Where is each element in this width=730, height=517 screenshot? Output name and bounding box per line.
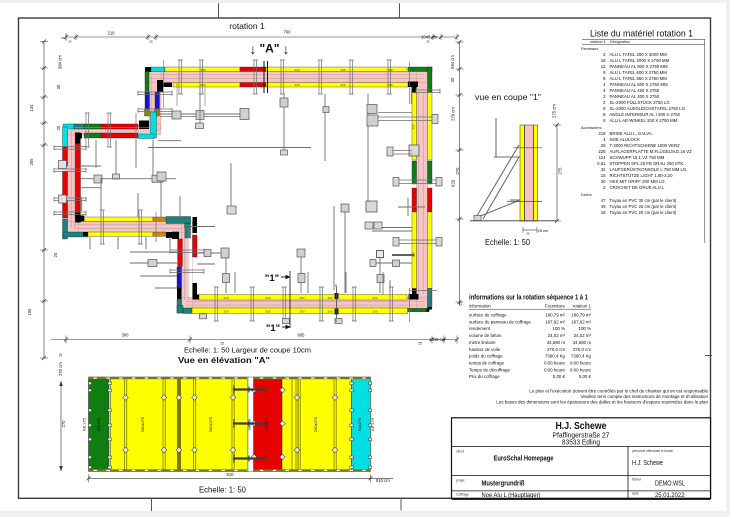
svg-text:32: 32	[601, 167, 606, 172]
svg-text:DEMO.WSL: DEMO.WSL	[655, 478, 685, 487]
svg-text:200: 200	[372, 310, 377, 314]
svg-text:218: 218	[598, 131, 606, 136]
svg-text:200: 200	[223, 310, 228, 314]
svg-text:Les bases des dimensions sont: Les bases des dimensions sont les épaiss…	[496, 400, 708, 405]
svg-text:18: 18	[601, 210, 606, 215]
svg-text:18: 18	[601, 58, 606, 63]
svg-text:200: 200	[411, 252, 415, 257]
svg-text:200x275: 200x275	[208, 416, 213, 432]
svg-text:SCHWUPP 15,1 VZ 750 MM: SCHWUPP 15,1 VZ 750 MM	[610, 155, 665, 160]
svg-text:BRIDE ALU L, GALVA.: BRIDE ALU L, GALVA.	[610, 131, 653, 136]
svg-text:83533 Edling: 83533 Edling	[562, 438, 600, 447]
svg-text:SL-2000 FÜLLSTÜCK 2750 LG: SL-2000 FÜLLSTÜCK 2750 LG	[610, 100, 671, 105]
svg-text:884 cm: 884 cm	[58, 55, 63, 69]
svg-text:ALU L AE-WINKEL 100 X 2750 MM: ALU L AE-WINKEL 100 X 2750 MM	[610, 118, 678, 123]
svg-text:25: 25	[526, 232, 530, 236]
svg-text:200: 200	[294, 68, 299, 72]
svg-text:Echelle: 1: 50 Largeur de co: Echelle: 1: 50 Largeur de coupe 10cm	[184, 346, 311, 355]
svg-text:629: 629	[451, 179, 456, 187]
svg-text:25: 25	[68, 40, 72, 44]
svg-text:200: 200	[387, 68, 392, 72]
svg-text:"1": "1"	[265, 273, 279, 284]
svg-text:25: 25	[53, 252, 58, 257]
svg-text:Fourniture: Fourniture	[545, 304, 566, 309]
svg-text:Echelle: 1: 50: Echelle: 1: 50	[485, 238, 531, 247]
svg-text:25: 25	[61, 36, 65, 40]
svg-text:Echelle: 1: 50: Echelle: 1: 50	[199, 486, 247, 495]
svg-text:200: 200	[265, 296, 270, 300]
svg-text:Tuyau en PVC 25 cm (par le cli: Tuyau en PVC 25 cm (par le client)	[610, 204, 677, 209]
svg-text:5: 5	[335, 319, 337, 323]
svg-text:7390,4 Kg: 7390,4 Kg	[571, 354, 592, 359]
svg-text:0,00 €: 0,00 €	[579, 374, 592, 379]
svg-text:200: 200	[372, 296, 377, 300]
svg-text:HKS MIT GRIFF 200 MM LG.: HKS MIT GRIFF 200 MM LG.	[610, 179, 666, 184]
svg-text:Liste du matériel rotation 1: Liste du matériel rotation 1	[590, 29, 693, 39]
svg-text:Le plan et l'exécution doivent: Le plan et l'exécution doivent être cont…	[529, 389, 708, 394]
svg-text:30: 30	[450, 77, 455, 82]
svg-text:information: information	[469, 304, 491, 309]
svg-text:228: 228	[598, 149, 606, 154]
svg-text:694 cm: 694 cm	[450, 55, 455, 69]
svg-text:0:00 heure: 0:00 heure	[544, 367, 566, 372]
svg-text:RICHTSTÜTZE LIGHT 1,80-3,20: RICHTSTÜTZE LIGHT 1,80-3,20	[610, 173, 674, 178]
svg-text:LAUFGERÜSTKONSOLE L 750 MM LG.: LAUFGERÜSTKONSOLE L 750 MM LG.	[610, 167, 688, 172]
svg-text:270 cm: 270 cm	[58, 362, 63, 376]
svg-text:25: 25	[418, 342, 422, 346]
svg-text:187,92 m²: 187,92 m²	[571, 319, 591, 324]
svg-text:PANNEAU AL 900 X 2750 MM: PANNEAU AL 900 X 2750 MM	[610, 64, 668, 69]
svg-text:12: 12	[601, 64, 606, 69]
svg-text:Prix du coffrage: Prix du coffrage	[469, 374, 500, 379]
svg-text:Coffrage: Coffrage	[456, 493, 469, 497]
svg-text:187,92 m²: 187,92 m²	[545, 319, 565, 324]
svg-text:"A": "A"	[259, 42, 279, 56]
svg-text:200: 200	[340, 83, 345, 87]
svg-text:34,580 m: 34,580 m	[547, 340, 566, 345]
svg-text:200x275: 200x275	[140, 416, 145, 432]
svg-text:Tuyau en PVC 20 cm (par le cli: Tuyau en PVC 20 cm (par le client)	[610, 210, 677, 215]
svg-text:275: 275	[558, 167, 563, 175]
svg-text:ALU L TAFEL 550 X 2750 MM: ALU L TAFEL 550 X 2750 MM	[610, 76, 668, 81]
svg-text:fichier: fichier	[632, 478, 642, 482]
svg-text:EuroSchal Homepage: EuroSchal Homepage	[494, 456, 554, 463]
svg-text:180,79 m²: 180,79 m²	[571, 313, 591, 318]
svg-text:date: date	[632, 492, 639, 496]
svg-text:200: 200	[294, 83, 299, 87]
svg-text:surface du panneau de coffrage: surface du panneau de coffrage	[469, 319, 531, 324]
svg-text:810: 810	[227, 472, 235, 477]
svg-text:275 cm: 275 cm	[552, 104, 557, 118]
svg-text:20: 20	[56, 125, 61, 130]
svg-text:rendement: rendement	[469, 326, 491, 331]
svg-text:255: 255	[29, 158, 34, 166]
svg-text:rotation 1: rotation 1	[590, 40, 606, 44]
svg-text:200: 200	[387, 83, 392, 87]
svg-text:368x2750: 368x2750	[248, 418, 252, 430]
svg-text:24,02 m³: 24,02 m³	[574, 333, 592, 338]
svg-text:270,0 cm: 270,0 cm	[573, 347, 591, 352]
svg-text:114: 114	[599, 155, 606, 160]
svg-text:PANNEAU AL 400 X 2750: PANNEAU AL 400 X 2750	[610, 94, 660, 99]
svg-text:0:00 heure: 0:00 heure	[570, 360, 592, 365]
svg-text:Vue en élévation "A": Vue en élévation "A"	[178, 355, 270, 365]
svg-text:28: 28	[601, 143, 606, 148]
svg-text:0,00 €: 0,00 €	[553, 374, 566, 379]
svg-text:200: 200	[200, 68, 205, 72]
svg-text:30: 30	[601, 179, 606, 184]
svg-text:T-2000 RICHTSCHIENE 1000 VERZ: T-2000 RICHTSCHIENE 1000 VERZ	[610, 143, 681, 148]
svg-text:200: 200	[340, 68, 345, 72]
svg-text:projet: projet	[456, 479, 465, 483]
svg-text:25.01.2022: 25.01.2022	[655, 492, 685, 499]
svg-text:200: 200	[411, 124, 415, 129]
svg-text:ALU L TAFEL 600 X 2750 MM: ALU L TAFEL 600 X 2750 MM	[610, 70, 668, 75]
svg-text:personne effectuant le travail: personne effectuant le travail	[632, 449, 673, 453]
svg-text:Divers: Divers	[581, 193, 592, 197]
svg-text:Noe Alu L (Hauptlager): Noe Alu L (Hauptlager)	[482, 492, 541, 499]
svg-text:200: 200	[327, 296, 332, 300]
svg-text:270: 270	[455, 167, 460, 175]
svg-text:200: 200	[265, 310, 270, 314]
svg-text:49: 49	[601, 204, 606, 209]
svg-text:↓: ↓	[283, 41, 290, 57]
svg-text:rotation 1: rotation 1	[229, 21, 265, 31]
svg-text:200x275: 200x275	[313, 416, 318, 432]
svg-text:100 %: 100 %	[579, 326, 592, 331]
svg-text:200: 200	[327, 310, 332, 314]
svg-text:0,61: 0,61	[597, 161, 606, 166]
svg-text:temps de coffrage: temps de coffrage	[469, 360, 505, 365]
svg-text:↓: ↓	[250, 41, 257, 57]
svg-text:Désignation: Désignation	[610, 40, 630, 44]
svg-text:poids du coffrage: poids du coffrage	[469, 354, 503, 359]
svg-text:24,02 m³: 24,02 m³	[548, 333, 566, 338]
svg-text:25: 25	[149, 40, 153, 44]
svg-text:195: 195	[27, 308, 32, 316]
svg-text:270: 270	[61, 420, 66, 428]
svg-text:rotation 1: rotation 1	[573, 304, 592, 309]
svg-text:25: 25	[459, 302, 463, 306]
svg-text:15: 15	[601, 173, 606, 178]
svg-text:60x275: 60x275	[357, 417, 362, 431]
svg-text:0:00 heure: 0:00 heure	[544, 360, 566, 365]
svg-text:100 %: 100 %	[553, 326, 566, 331]
svg-text:ALU L TAFEL 2000 X 2750 MM: ALU L TAFEL 2000 X 2750 MM	[610, 58, 670, 63]
svg-text:665: 665	[298, 333, 306, 338]
svg-text:Veuillez tenir compte des inst: Veuillez tenir compte des instructions d…	[581, 394, 709, 399]
svg-text:5: 5	[335, 284, 337, 288]
svg-text:PANNEAU AL 450 X 2750: PANNEAU AL 450 X 2750	[610, 88, 660, 93]
svg-text:PANNEAU AL 500 X 2750 MM: PANNEAU AL 500 X 2750 MM	[610, 82, 668, 87]
svg-text:270,0 cm: 270,0 cm	[547, 347, 565, 352]
svg-text:180,79 m²: 180,79 m²	[545, 313, 565, 318]
svg-text:47: 47	[601, 198, 606, 203]
svg-text:134: 134	[29, 104, 34, 112]
svg-text:1045 cm: 1045 cm	[429, 337, 446, 342]
svg-text:"1": "1"	[266, 323, 280, 334]
svg-text:mètre linéaire: mètre linéaire	[469, 340, 496, 345]
svg-text:0:00 heure: 0:00 heure	[570, 367, 592, 372]
svg-text:200: 200	[299, 296, 304, 300]
svg-text:Panneaux: Panneaux	[581, 47, 598, 51]
svg-text:NOE ALULOCK: NOE ALULOCK	[610, 137, 640, 142]
svg-text:90x275: 90x275	[264, 417, 269, 431]
svg-text:ANGLE INTERIEUR AL I 300 X 275: ANGLE INTERIEUR AL I 300 X 2750	[610, 112, 681, 117]
svg-text:278 cm: 278 cm	[451, 107, 456, 121]
svg-text:Tuyau en PVC 30 cm (par le cli: Tuyau en PVC 30 cm (par le client)	[610, 198, 677, 203]
svg-text:H.J. Schewe: H.J. Schewe	[632, 460, 663, 467]
svg-text:1045 cm: 1045 cm	[421, 35, 438, 40]
svg-text:STOPPEN SPL 25 FB GRAU 250 STK: STOPPEN SPL 25 FB GRAU 250 STK.	[610, 161, 685, 166]
svg-text:25: 25	[59, 353, 63, 357]
svg-text:200: 200	[200, 83, 205, 87]
svg-text:200: 200	[223, 296, 228, 300]
svg-text:informations sur la rotation: informations sur la rotation séquence 1 …	[469, 295, 588, 302]
svg-text:7390,4 Kg: 7390,4 Kg	[545, 354, 566, 359]
svg-text:AE 275: AE 275	[370, 417, 375, 431]
svg-text:760: 760	[284, 30, 292, 35]
svg-text:210: 210	[108, 31, 116, 36]
svg-text:client: client	[456, 450, 464, 454]
svg-text:30: 30	[56, 84, 61, 89]
svg-text:25 cm: 25 cm	[538, 228, 550, 233]
svg-text:810 cm: 810 cm	[376, 478, 390, 483]
svg-text:CROCHET DE GRUE ALU L: CROCHET DE GRUE ALU L	[610, 185, 665, 190]
svg-text:volume de béton: volume de béton	[469, 333, 502, 338]
svg-text:AE 275: AE 275	[82, 417, 87, 431]
svg-text:vue en coupe "1": vue en coupe "1"	[475, 92, 541, 102]
svg-text:25: 25	[426, 40, 430, 44]
svg-text:SL-2000 AUSGLEICHSTAFEL 2750 L: SL-2000 AUSGLEICHSTAFEL 2750 LG	[610, 106, 686, 111]
svg-text:surface de coffrage: surface de coffrage	[469, 313, 507, 318]
svg-text:ALU L TAFEL 200 X 3000 MM: ALU L TAFEL 200 X 3000 MM	[610, 52, 668, 57]
svg-text:300: 300	[122, 333, 130, 338]
svg-text:200: 200	[299, 310, 304, 314]
svg-text:34,580 m: 34,580 m	[573, 340, 592, 345]
svg-text:60x275: 60x275	[96, 417, 101, 431]
svg-text:Accessoires: Accessoires	[581, 126, 602, 130]
svg-text:Mustergrundriß: Mustergrundriß	[482, 480, 526, 487]
svg-text:hauteur de voile: hauteur de voile	[469, 347, 501, 352]
svg-text:AUFLAGERPLATTE M.FLÜGELM.D.16: AUFLAGERPLATTE M.FLÜGELM.D.16 VZ	[610, 149, 693, 154]
svg-text:Temps de décoffrage: Temps de décoffrage	[469, 367, 510, 372]
